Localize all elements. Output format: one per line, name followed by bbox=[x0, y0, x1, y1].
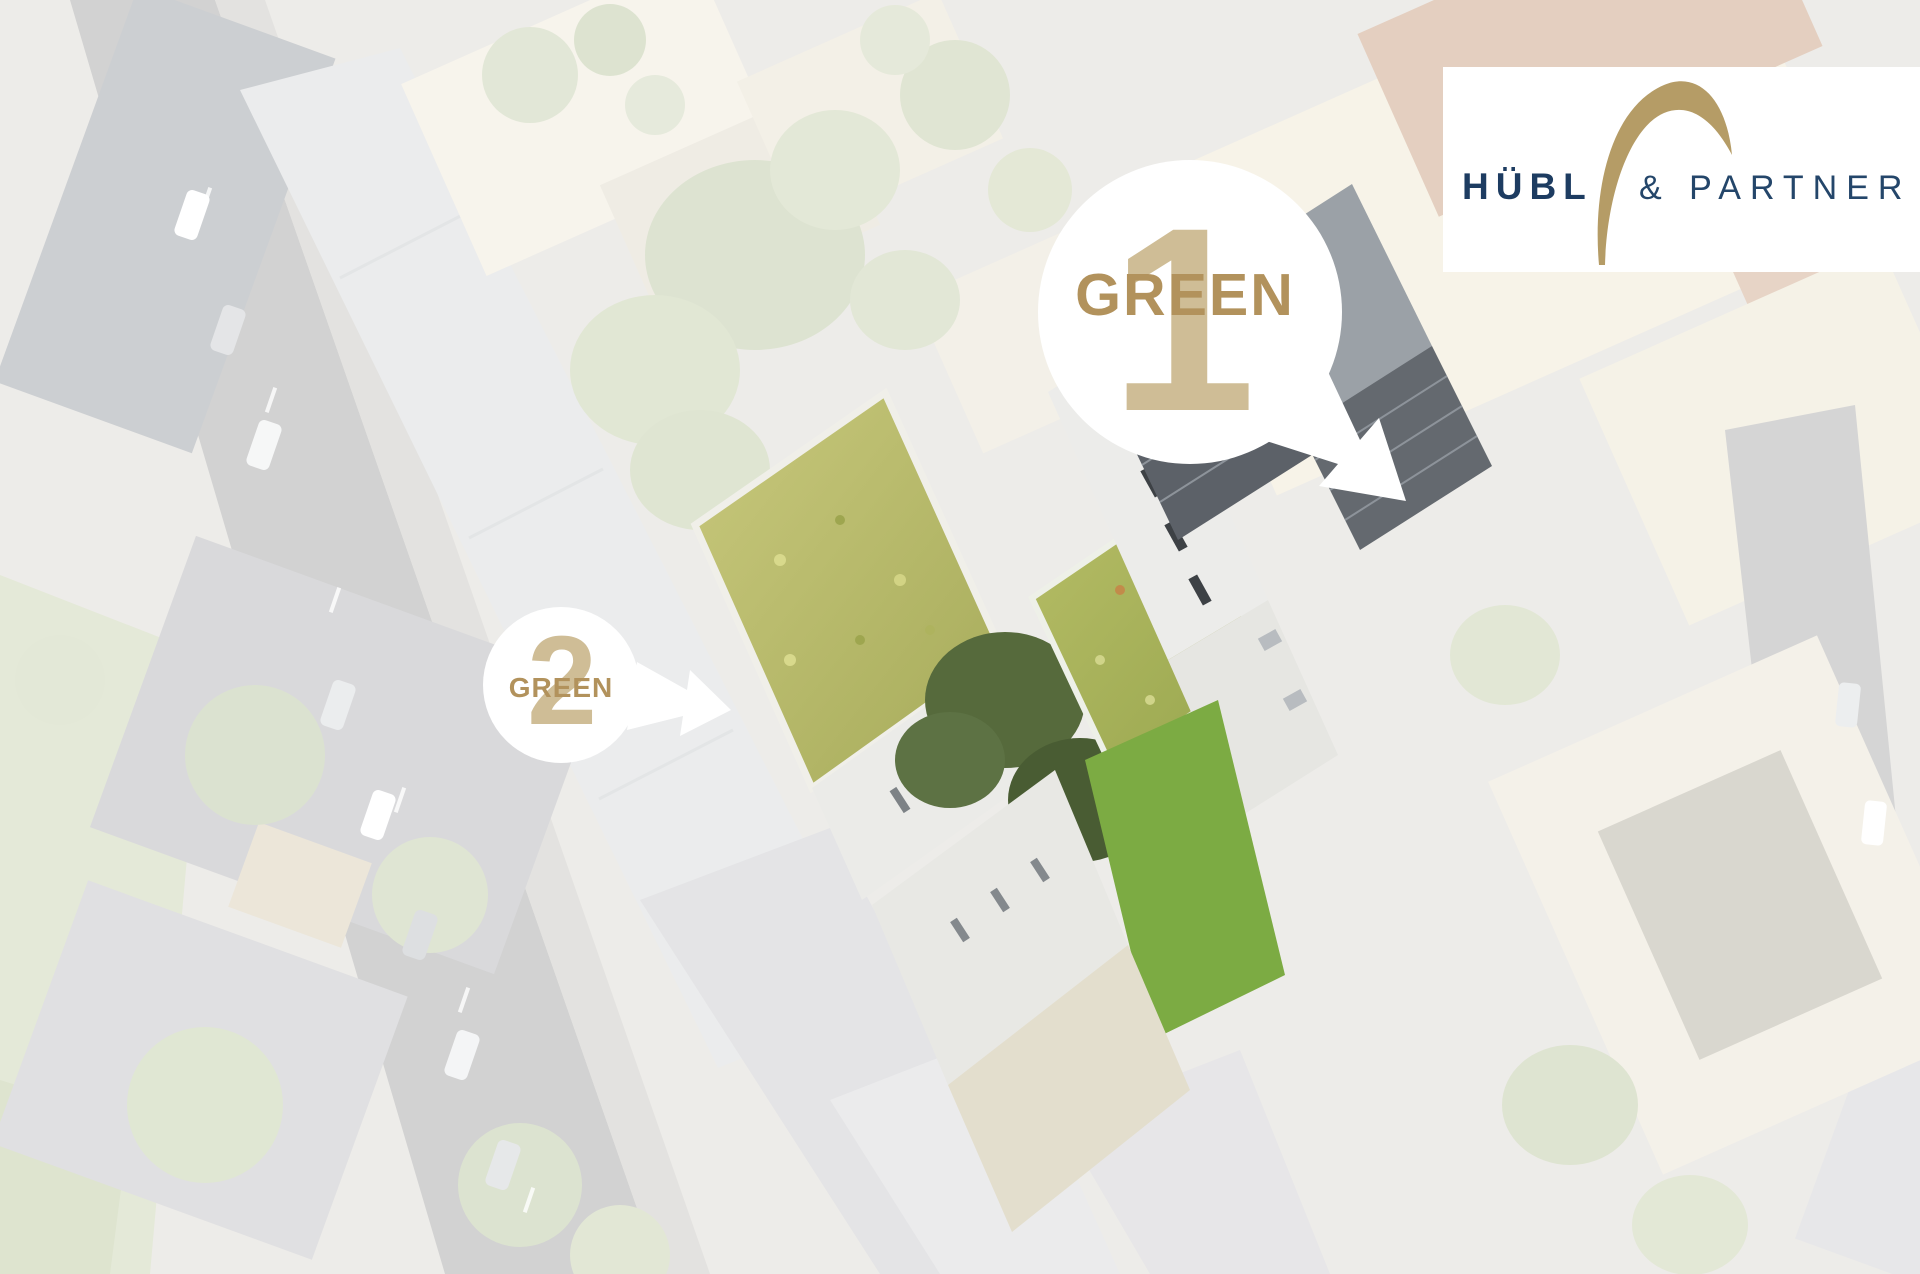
roof-planting bbox=[855, 635, 865, 645]
logo-primary-text: HÜBL bbox=[1462, 166, 1593, 208]
roof-planting bbox=[774, 554, 786, 566]
roof-planting bbox=[784, 654, 796, 666]
screenshot-root: 1 GREEN 2 GREEN HÜBL & PARTNER bbox=[0, 0, 1920, 1274]
logo-huebl-partner: HÜBL & PARTNER bbox=[1443, 67, 1920, 272]
roof-planting bbox=[925, 625, 935, 635]
roof-planting bbox=[1145, 695, 1155, 705]
callout-2-label: GREEN bbox=[471, 672, 651, 704]
courtyard-tree bbox=[895, 712, 1005, 808]
callout-1-label: GREEN bbox=[1025, 261, 1345, 329]
roof-planting bbox=[1095, 655, 1105, 665]
roof-planting bbox=[894, 574, 906, 586]
roof-planting bbox=[835, 515, 845, 525]
logo-secondary-text: & PARTNER bbox=[1639, 169, 1911, 208]
roof-planting bbox=[1115, 585, 1125, 595]
